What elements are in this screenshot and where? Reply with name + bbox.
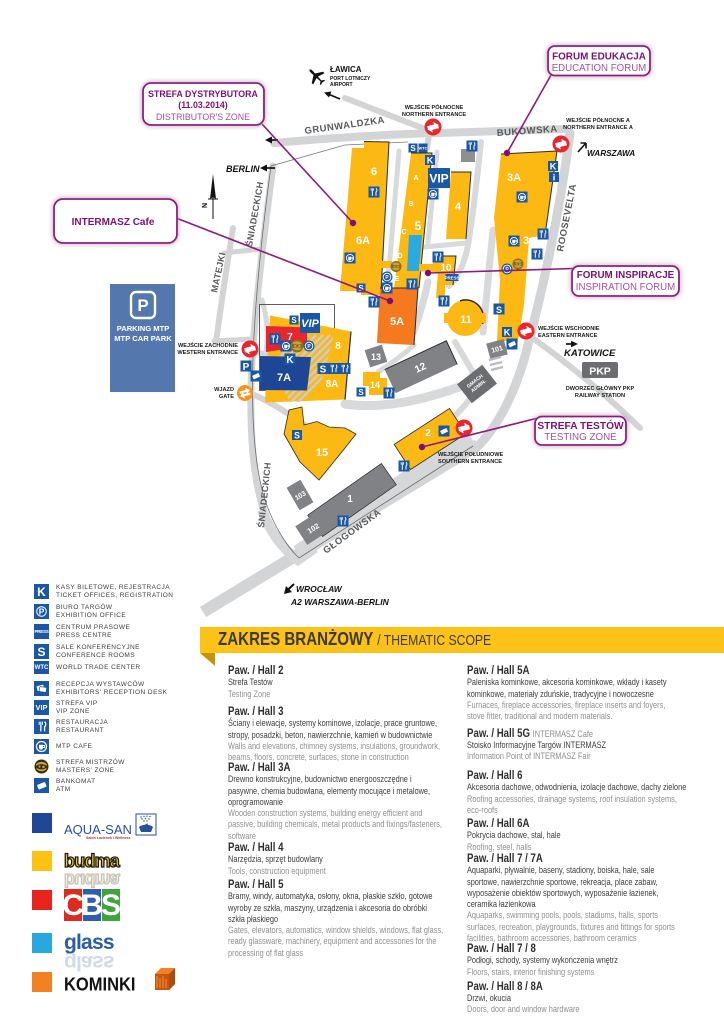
- svg-text:7A: 7A: [277, 372, 291, 384]
- svg-text:ŁAWICA: ŁAWICA: [330, 65, 362, 74]
- svg-text:3: 3: [523, 235, 529, 247]
- svg-text:WEJŚCIE PÓŁNOCNE A: WEJŚCIE PÓŁNOCNE A: [566, 116, 630, 124]
- svg-text:1: 1: [347, 494, 353, 505]
- svg-text:WROCŁAW: WROCŁAW: [296, 584, 343, 594]
- svg-text:MTP CAR PARK: MTP CAR PARK: [114, 334, 172, 343]
- svg-text:5A: 5A: [390, 316, 404, 328]
- svg-text:2: 2: [425, 428, 431, 439]
- svg-text:A2 WARSZAWA-BERLIN: A2 WARSZAWA-BERLIN: [290, 597, 390, 607]
- svg-text:6: 6: [371, 166, 377, 178]
- svg-text:5: 5: [415, 219, 422, 233]
- svg-text:P: P: [243, 362, 250, 373]
- svg-text:INSPIRATION FORUM: INSPIRATION FORUM: [576, 282, 675, 293]
- svg-text:8A: 8A: [326, 379, 339, 390]
- svg-text:E: E: [395, 276, 400, 283]
- svg-text:K: K: [550, 162, 557, 172]
- svg-text:INTERMASZ Cafe: INTERMASZ Cafe: [72, 217, 155, 228]
- svg-text:P: P: [39, 607, 45, 617]
- svg-text:WTC: WTC: [418, 146, 427, 151]
- svg-text:WJAZD: WJAZD: [214, 387, 234, 393]
- svg-text:S: S: [358, 388, 364, 397]
- svg-text:S: S: [294, 431, 300, 441]
- svg-text:AIRPORT: AIRPORT: [330, 82, 353, 88]
- svg-text:STREFA DYSTRYBUTORA: STREFA DYSTRYBUTORA: [148, 89, 258, 99]
- svg-text:K: K: [286, 355, 294, 366]
- svg-text:DWORZEC GŁÓWNY PKP: DWORZEC GŁÓWNY PKP: [566, 384, 635, 392]
- svg-text:FORUM EDUKACJA: FORUM EDUKACJA: [552, 52, 646, 63]
- svg-text:TESTING ZONE: TESTING ZONE: [544, 432, 617, 443]
- svg-text:14: 14: [370, 380, 380, 390]
- svg-text:KATOWICE: KATOWICE: [564, 348, 616, 359]
- svg-text:WARSZAWA: WARSZAWA: [587, 149, 635, 158]
- svg-text:FORUM INSPIRACJE: FORUM INSPIRACJE: [577, 270, 675, 281]
- svg-text:STREFA TESTÓW: STREFA TESTÓW: [537, 419, 624, 432]
- svg-text:BUKOWSKA: BUKOWSKA: [496, 124, 558, 139]
- svg-text:PRESS: PRESS: [445, 275, 460, 280]
- svg-text:A: A: [413, 175, 418, 182]
- svg-text:8: 8: [335, 341, 341, 352]
- svg-text:WEJŚCIE WSCHODNIE: WEJŚCIE WSCHODNIE: [538, 325, 600, 332]
- svg-text:GATE: GATE: [219, 394, 234, 400]
- svg-text:PARKING MTP: PARKING MTP: [117, 324, 170, 333]
- svg-text:EASTERN ENTRANCE: EASTERN ENTRANCE: [538, 333, 598, 339]
- svg-text:11: 11: [460, 314, 472, 326]
- svg-text:B: B: [408, 201, 413, 208]
- svg-text:SOUTHERN ENTRANCE: SOUTHERN ENTRANCE: [438, 459, 502, 465]
- svg-text:3A: 3A: [507, 172, 521, 184]
- svg-text:WEJŚCIE POŁUDNIOWE: WEJŚCIE POŁUDNIOWE: [438, 451, 504, 458]
- svg-text:WEJŚCIE ZACHODNIE: WEJŚCIE ZACHODNIE: [178, 342, 238, 349]
- svg-text:S: S: [291, 316, 297, 325]
- svg-text:WESTERN ENTRANCE: WESTERN ENTRANCE: [177, 350, 238, 356]
- svg-text:(11.03.2014): (11.03.2014): [178, 100, 227, 110]
- svg-text:S: S: [496, 305, 502, 315]
- svg-text:S: S: [320, 365, 327, 376]
- svg-text:VIP: VIP: [429, 172, 448, 186]
- svg-text:BERLIN: BERLIN: [226, 164, 260, 174]
- svg-text:6A: 6A: [356, 235, 370, 247]
- svg-text:S: S: [410, 144, 416, 153]
- svg-text:B: B: [81, 889, 103, 922]
- svg-text:NORTHERN ENTRANCE: NORTHERN ENTRANCE: [402, 112, 467, 118]
- svg-text:RAILWAY STATION: RAILWAY STATION: [575, 393, 625, 399]
- svg-text:C: C: [401, 229, 406, 236]
- svg-text:VIP: VIP: [301, 318, 319, 330]
- svg-text:K: K: [427, 156, 434, 166]
- svg-text:EDUCATION FORUM: EDUCATION FORUM: [552, 63, 647, 74]
- svg-text:PKP: PKP: [589, 366, 611, 378]
- svg-text:S: S: [101, 889, 121, 922]
- svg-text:K: K: [504, 328, 511, 338]
- svg-text:NORTHERN ENTRANCE A: NORTHERN ENTRANCE A: [563, 125, 633, 131]
- svg-text:P: P: [137, 296, 148, 315]
- svg-text:WEJŚCIE PÓŁNOCNE: WEJŚCIE PÓŁNOCNE: [405, 103, 464, 111]
- svg-text:D: D: [397, 253, 402, 260]
- svg-text:N: N: [202, 203, 209, 208]
- svg-text:4: 4: [455, 201, 462, 213]
- svg-text:13: 13: [371, 352, 381, 362]
- svg-text:i: i: [553, 173, 556, 183]
- svg-text:DISTRIBUTOR'S ZONE: DISTRIBUTOR'S ZONE: [156, 112, 250, 122]
- svg-text:15: 15: [316, 447, 328, 459]
